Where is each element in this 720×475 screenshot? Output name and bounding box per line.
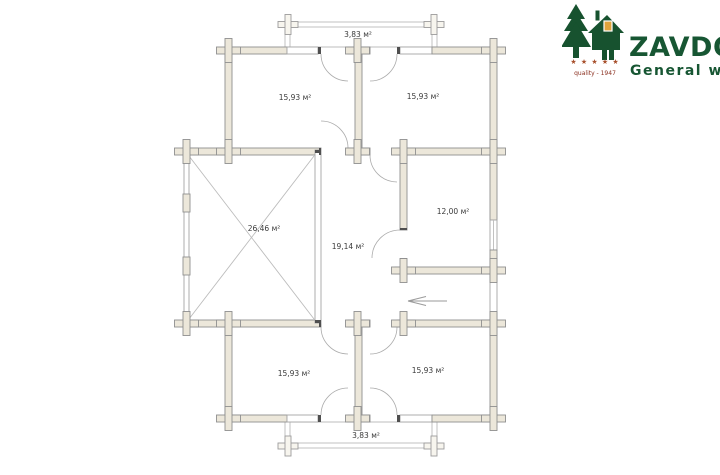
tree-house-icon <box>562 3 628 61</box>
window <box>287 415 318 422</box>
brand-tagline: General wood <box>630 64 720 78</box>
quality-stars: ★ ★ ★ ★ ★ <box>562 58 628 66</box>
quality-text: quality - 1947 <box>562 70 628 77</box>
brand-name: ZAVDOZ <box>629 34 720 61</box>
area-label-room-right: 12,00 м² <box>437 207 470 216</box>
door-jambs <box>318 47 407 422</box>
entrance-arrow <box>408 297 447 306</box>
porch-post <box>278 436 298 456</box>
area-label-bedroom-top-right: 15,93 м² <box>407 92 440 101</box>
area-label-porch-bottom: 3,83 м² <box>352 431 380 440</box>
terrace-deck <box>183 152 314 323</box>
log-corner-joints <box>175 39 506 431</box>
floor-plan-page: 3,83 м² 15,93 м² 15,93 м² 26,46 м² 19,14… <box>0 0 720 475</box>
porch-post <box>424 15 444 35</box>
window <box>287 47 318 54</box>
area-label-bedroom-bottom-left: 15,93 м² <box>278 369 311 378</box>
area-label-bedroom-bottom-right: 15,93 м² <box>412 366 445 375</box>
area-label-hall: 19,14 м² <box>332 242 365 251</box>
walls <box>185 47 497 422</box>
area-label-bedroom-top-left: 15,93 м² <box>279 93 312 102</box>
brand-logo: ZAVDOZ General wood ★ ★ ★ ★ ★ quality - … <box>562 3 720 85</box>
window <box>400 47 432 54</box>
porch-post <box>424 436 444 456</box>
area-label-terrace: 26,46 м² <box>248 224 281 233</box>
porch-post <box>278 15 298 35</box>
area-label-porch-top: 3,83 м² <box>344 30 372 39</box>
window <box>400 415 432 422</box>
